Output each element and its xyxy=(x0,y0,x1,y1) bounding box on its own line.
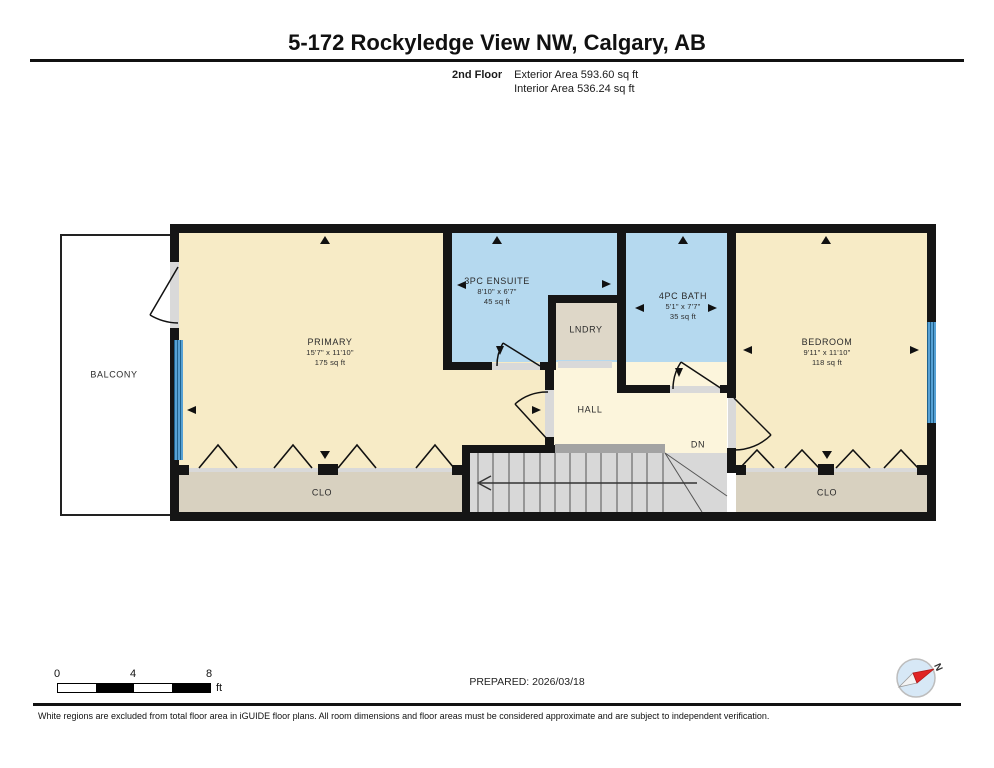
wall xyxy=(548,295,626,303)
stair-railing xyxy=(555,444,665,453)
room-label-bath: 4PC BATH 5'1" x 7'7" 35 sq ft xyxy=(659,291,707,321)
door-threshold xyxy=(728,398,736,448)
room-label-ensuite: 3PC ENSUITE 8'10" x 6'7" 45 sq ft xyxy=(464,276,530,306)
wall xyxy=(443,362,492,370)
room-label-bedroom: BEDROOM 9'11" x 11'10" 118 sq ft xyxy=(802,337,853,367)
scale-segment xyxy=(172,684,210,692)
scale-segment xyxy=(96,684,134,692)
door-threshold xyxy=(545,390,554,437)
door-jamb xyxy=(452,465,462,475)
wall xyxy=(617,233,626,393)
room-label-balcony: BALCONY xyxy=(90,369,137,380)
scale-unit: ft xyxy=(216,682,222,694)
stairs-dn-label: DN xyxy=(691,439,705,450)
room-label-hall: HALL xyxy=(578,404,603,415)
floor-summary: 2nd Floor Exterior Area 593.60 sq ft Int… xyxy=(452,69,638,97)
wall xyxy=(170,512,936,521)
disclaimer-text: White regions are excluded from total fl… xyxy=(38,711,968,721)
wall xyxy=(170,224,936,233)
room-label-primary: PRIMARY 15'7" x 11'10" 175 sq ft xyxy=(306,337,354,367)
room-label-laundry: LNDRY xyxy=(569,324,602,335)
wall xyxy=(617,385,670,393)
room-label-closet-bedroom: CLO xyxy=(817,487,837,498)
door-jamb xyxy=(917,465,927,475)
scale-segment xyxy=(134,684,172,692)
wall xyxy=(462,445,557,453)
wall xyxy=(727,448,736,473)
title-divider xyxy=(30,59,964,62)
page-title: 5-172 Rockyledge View NW, Calgary, AB xyxy=(0,30,994,56)
scale-tick-0: 0 xyxy=(54,668,60,680)
exterior-area: Exterior Area 593.60 sq ft xyxy=(514,69,638,81)
laundry-opening xyxy=(558,361,612,368)
wall xyxy=(462,445,470,513)
scale-bar xyxy=(57,683,211,693)
door-jamb xyxy=(736,465,746,475)
scale-tick-4: 4 xyxy=(130,668,136,680)
window xyxy=(927,322,936,423)
door-jamb xyxy=(179,465,189,475)
door-threshold xyxy=(170,262,179,328)
stairs-region xyxy=(470,453,727,512)
compass-north-label: N xyxy=(931,662,944,673)
scale-tick-8: 8 xyxy=(206,668,212,680)
door-jamb xyxy=(318,464,338,475)
interior-area: Interior Area 536.24 sq ft xyxy=(514,83,638,95)
door-threshold xyxy=(670,386,720,393)
wall xyxy=(443,233,452,370)
floor-label: 2nd Floor xyxy=(452,69,502,97)
wall xyxy=(727,224,736,398)
room-label-closet-primary: CLO xyxy=(312,487,332,498)
footer-divider xyxy=(33,703,961,706)
door-threshold xyxy=(492,363,540,370)
prepared-date: PREPARED: 2026/03/18 xyxy=(469,676,584,688)
floor-plan-page: { "header": { "title": "5-172 Rockyledge… xyxy=(0,0,994,768)
door-jamb xyxy=(818,464,834,475)
wall xyxy=(545,362,554,390)
window xyxy=(174,340,183,460)
scale-segment xyxy=(58,684,96,692)
compass-icon xyxy=(897,659,935,697)
wall xyxy=(548,295,556,368)
